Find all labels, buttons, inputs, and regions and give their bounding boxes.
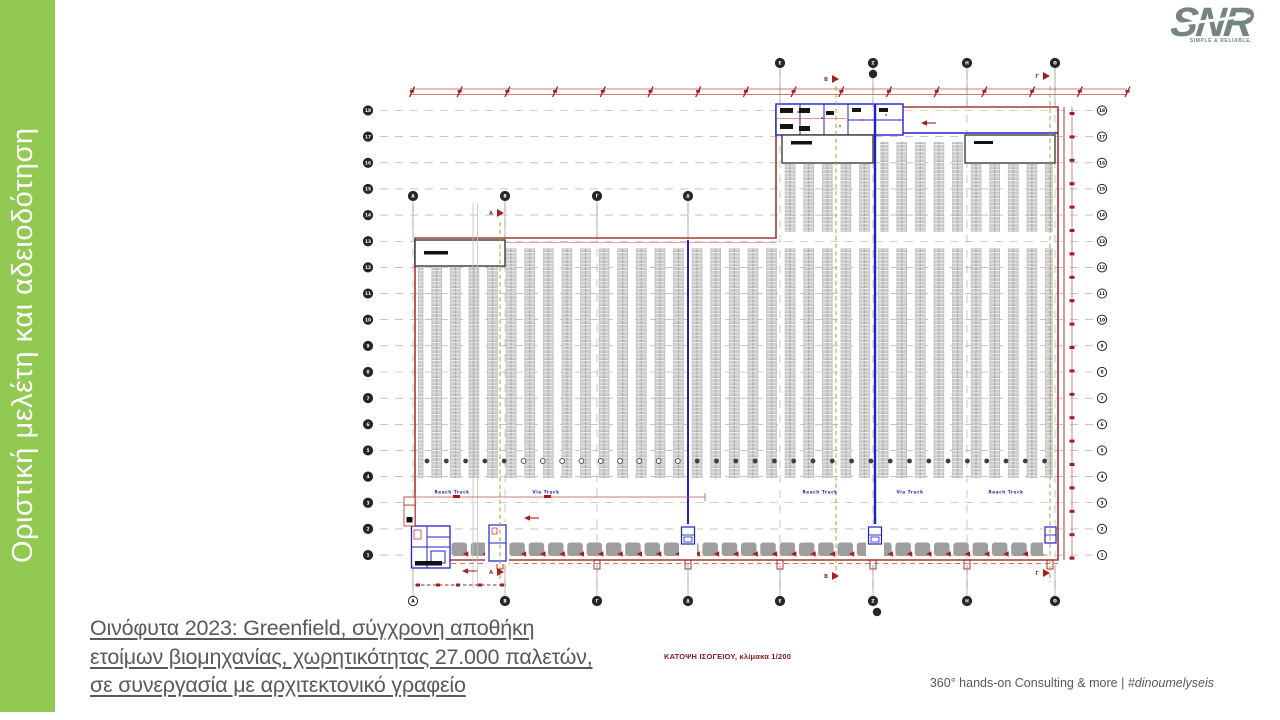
footer-text: 360° hands-on Consulting & more | [930,676,1124,690]
svg-text:14: 14 [365,213,371,219]
right-dimension-line [1070,107,1075,560]
svg-text:5: 5 [1100,448,1103,454]
svg-text:Α: Α [489,211,493,217]
svg-text:15: 15 [1099,187,1105,193]
svg-text:8: 8 [366,370,369,376]
svg-text:Ε: Ε [779,599,782,605]
svg-text:Α: Α [411,194,415,200]
svg-text:12: 12 [1099,265,1105,271]
svg-text:2: 2 [366,527,369,533]
svg-text:1: 1 [366,553,369,559]
logo-text: SNR [1169,2,1254,42]
svg-text:Via Truck: Via Truck [533,490,560,495]
svg-text:Ζ: Ζ [871,61,874,67]
svg-text:15: 15 [365,187,371,193]
svg-text:8: 8 [1100,370,1103,376]
svg-text:13: 13 [1099,239,1105,245]
caption-line-1: Οινόφυτα 2023: Greenfield, σύγχρονη αποθ… [90,614,592,643]
svg-text:12: 12 [365,265,371,271]
plan-scale-label: ΚΑΤΟΨΗ ΙΣΟΓΕΙΟΥ, κλίμακα 1/200 [664,652,791,661]
svg-text:Γ: Γ [1035,571,1039,577]
svg-text:Γ: Γ [596,194,599,200]
svg-text:Reach Truck: Reach Truck [434,490,469,495]
svg-text:4: 4 [366,474,369,480]
svg-text:Η: Η [965,599,969,605]
svg-text:6: 6 [366,422,369,428]
floor-plan-drawing: ΑΑΒΒΓΓReach TruckVia TruckReach TruckVia… [0,0,1280,720]
svg-text:3: 3 [1100,500,1103,506]
top-dimension-line [410,87,1131,98]
aisle-labels: Reach TruckVia TruckReach TruckVia Truck… [434,490,1023,495]
svg-text:2: 2 [1100,527,1103,533]
svg-text:6: 6 [1100,422,1103,428]
svg-text:11: 11 [365,291,371,297]
svg-text:7: 7 [366,396,369,402]
svg-text:Α: Α [411,599,415,605]
company-logo: SNR SIMPLE & RELIABLE. [1171,2,1252,44]
svg-text:Reach Truck: Reach Truck [988,490,1023,495]
svg-text:16: 16 [365,160,371,166]
caption-line-2: ετοίμων βιομηχανίας, χωρητικότητας 27.00… [90,643,592,672]
svg-text:Θ: Θ [1053,599,1057,605]
pallet-racking [418,142,1053,478]
svg-text:10: 10 [365,317,371,323]
svg-text:Δ: Δ [686,194,690,200]
svg-text:18: 18 [1099,108,1105,114]
svg-text:5: 5 [366,448,369,454]
svg-text:16: 16 [1099,160,1105,166]
interior-dimensions [415,493,705,587]
svg-text:17: 17 [365,134,371,140]
dock-doors [452,543,1047,557]
svg-text:Via Truck: Via Truck [897,490,924,495]
svg-text:4: 4 [1100,474,1103,480]
svg-text:11: 11 [1099,291,1105,297]
caption-line-3: σε συνεργασία με αρχιτεκτονικό γραφείο [90,671,592,700]
svg-text:Δ: Δ [686,599,690,605]
svg-text:Γ: Γ [1035,74,1039,80]
svg-text:Β: Β [824,574,828,580]
svg-text:9: 9 [1100,343,1103,349]
sidebar-title: Οριστική μελέτη και αδειοδότηση [7,58,49,633]
footer-credit: 360° hands-on Consulting & more | #dinou… [930,676,1214,690]
svg-text:Reach Truck: Reach Truck [802,490,837,495]
svg-text:3: 3 [366,500,369,506]
svg-text:18: 18 [365,108,371,114]
slide-caption: Οινόφυτα 2023: Greenfield, σύγχρονη αποθ… [90,614,592,700]
svg-text:Γ: Γ [596,599,599,605]
svg-text:Ε: Ε [779,61,782,67]
svg-text:7: 7 [1100,396,1103,402]
svg-text:Ζ: Ζ [871,599,874,605]
svg-text:Η: Η [965,61,969,67]
svg-text:17: 17 [1099,134,1105,140]
ground-office-block [404,497,450,568]
svg-text:13: 13 [365,239,371,245]
svg-text:10: 10 [1099,317,1105,323]
footer-hashtag: #dinoumelyseis [1128,676,1214,690]
svg-text:14: 14 [1099,213,1105,219]
svg-text:9: 9 [366,343,369,349]
svg-text:1: 1 [1100,553,1103,559]
svg-text:Θ: Θ [1053,61,1057,67]
svg-text:Β: Β [824,77,828,83]
svg-text:Α: Α [489,570,493,576]
